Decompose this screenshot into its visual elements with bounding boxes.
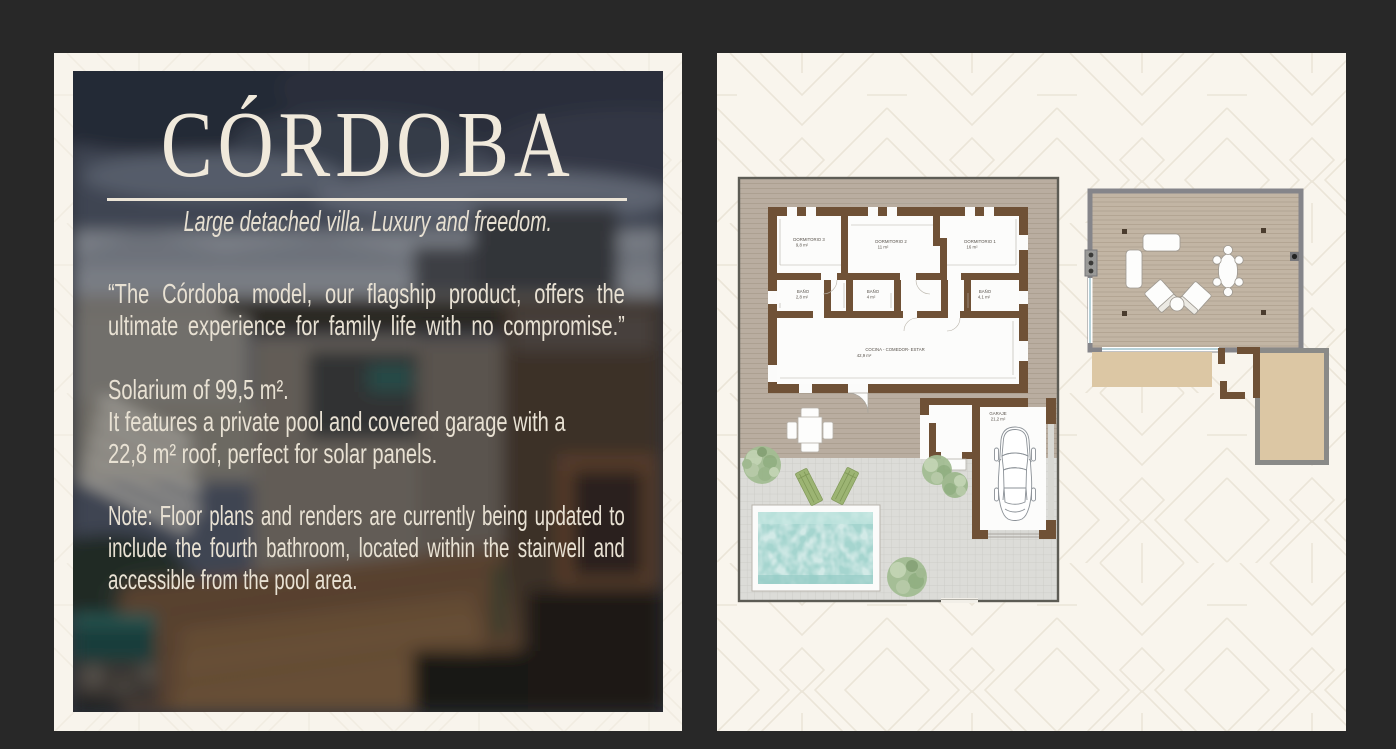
svg-text:4,1 m²: 4,1 m² [978, 295, 991, 300]
svg-text:2,8 m²: 2,8 m² [796, 295, 809, 300]
svg-text:DORMITORIO 2: DORMITORIO 2 [875, 239, 907, 244]
svg-text:21,2 m²: 21,2 m² [991, 417, 1006, 422]
svg-text:16 m²: 16 m² [967, 245, 979, 250]
svg-text:DORMITORIO 1: DORMITORIO 1 [964, 239, 996, 244]
svg-text:42,9 m²: 42,9 m² [857, 353, 872, 358]
svg-text:BAÑO: BAÑO [979, 289, 992, 294]
svg-text:9,8 m²: 9,8 m² [796, 243, 809, 248]
svg-text:11 m²: 11 m² [878, 245, 889, 250]
svg-text:DORMITORIO 3: DORMITORIO 3 [793, 237, 825, 242]
svg-text:BAÑO: BAÑO [867, 289, 880, 294]
svg-text:BAÑO: BAÑO [797, 289, 810, 294]
svg-text:GARAJE: GARAJE [989, 411, 1006, 416]
svg-text:COCINA - COMEDOR- ESTAR: COCINA - COMEDOR- ESTAR [865, 347, 924, 352]
svg-text:4 m²: 4 m² [867, 295, 876, 300]
